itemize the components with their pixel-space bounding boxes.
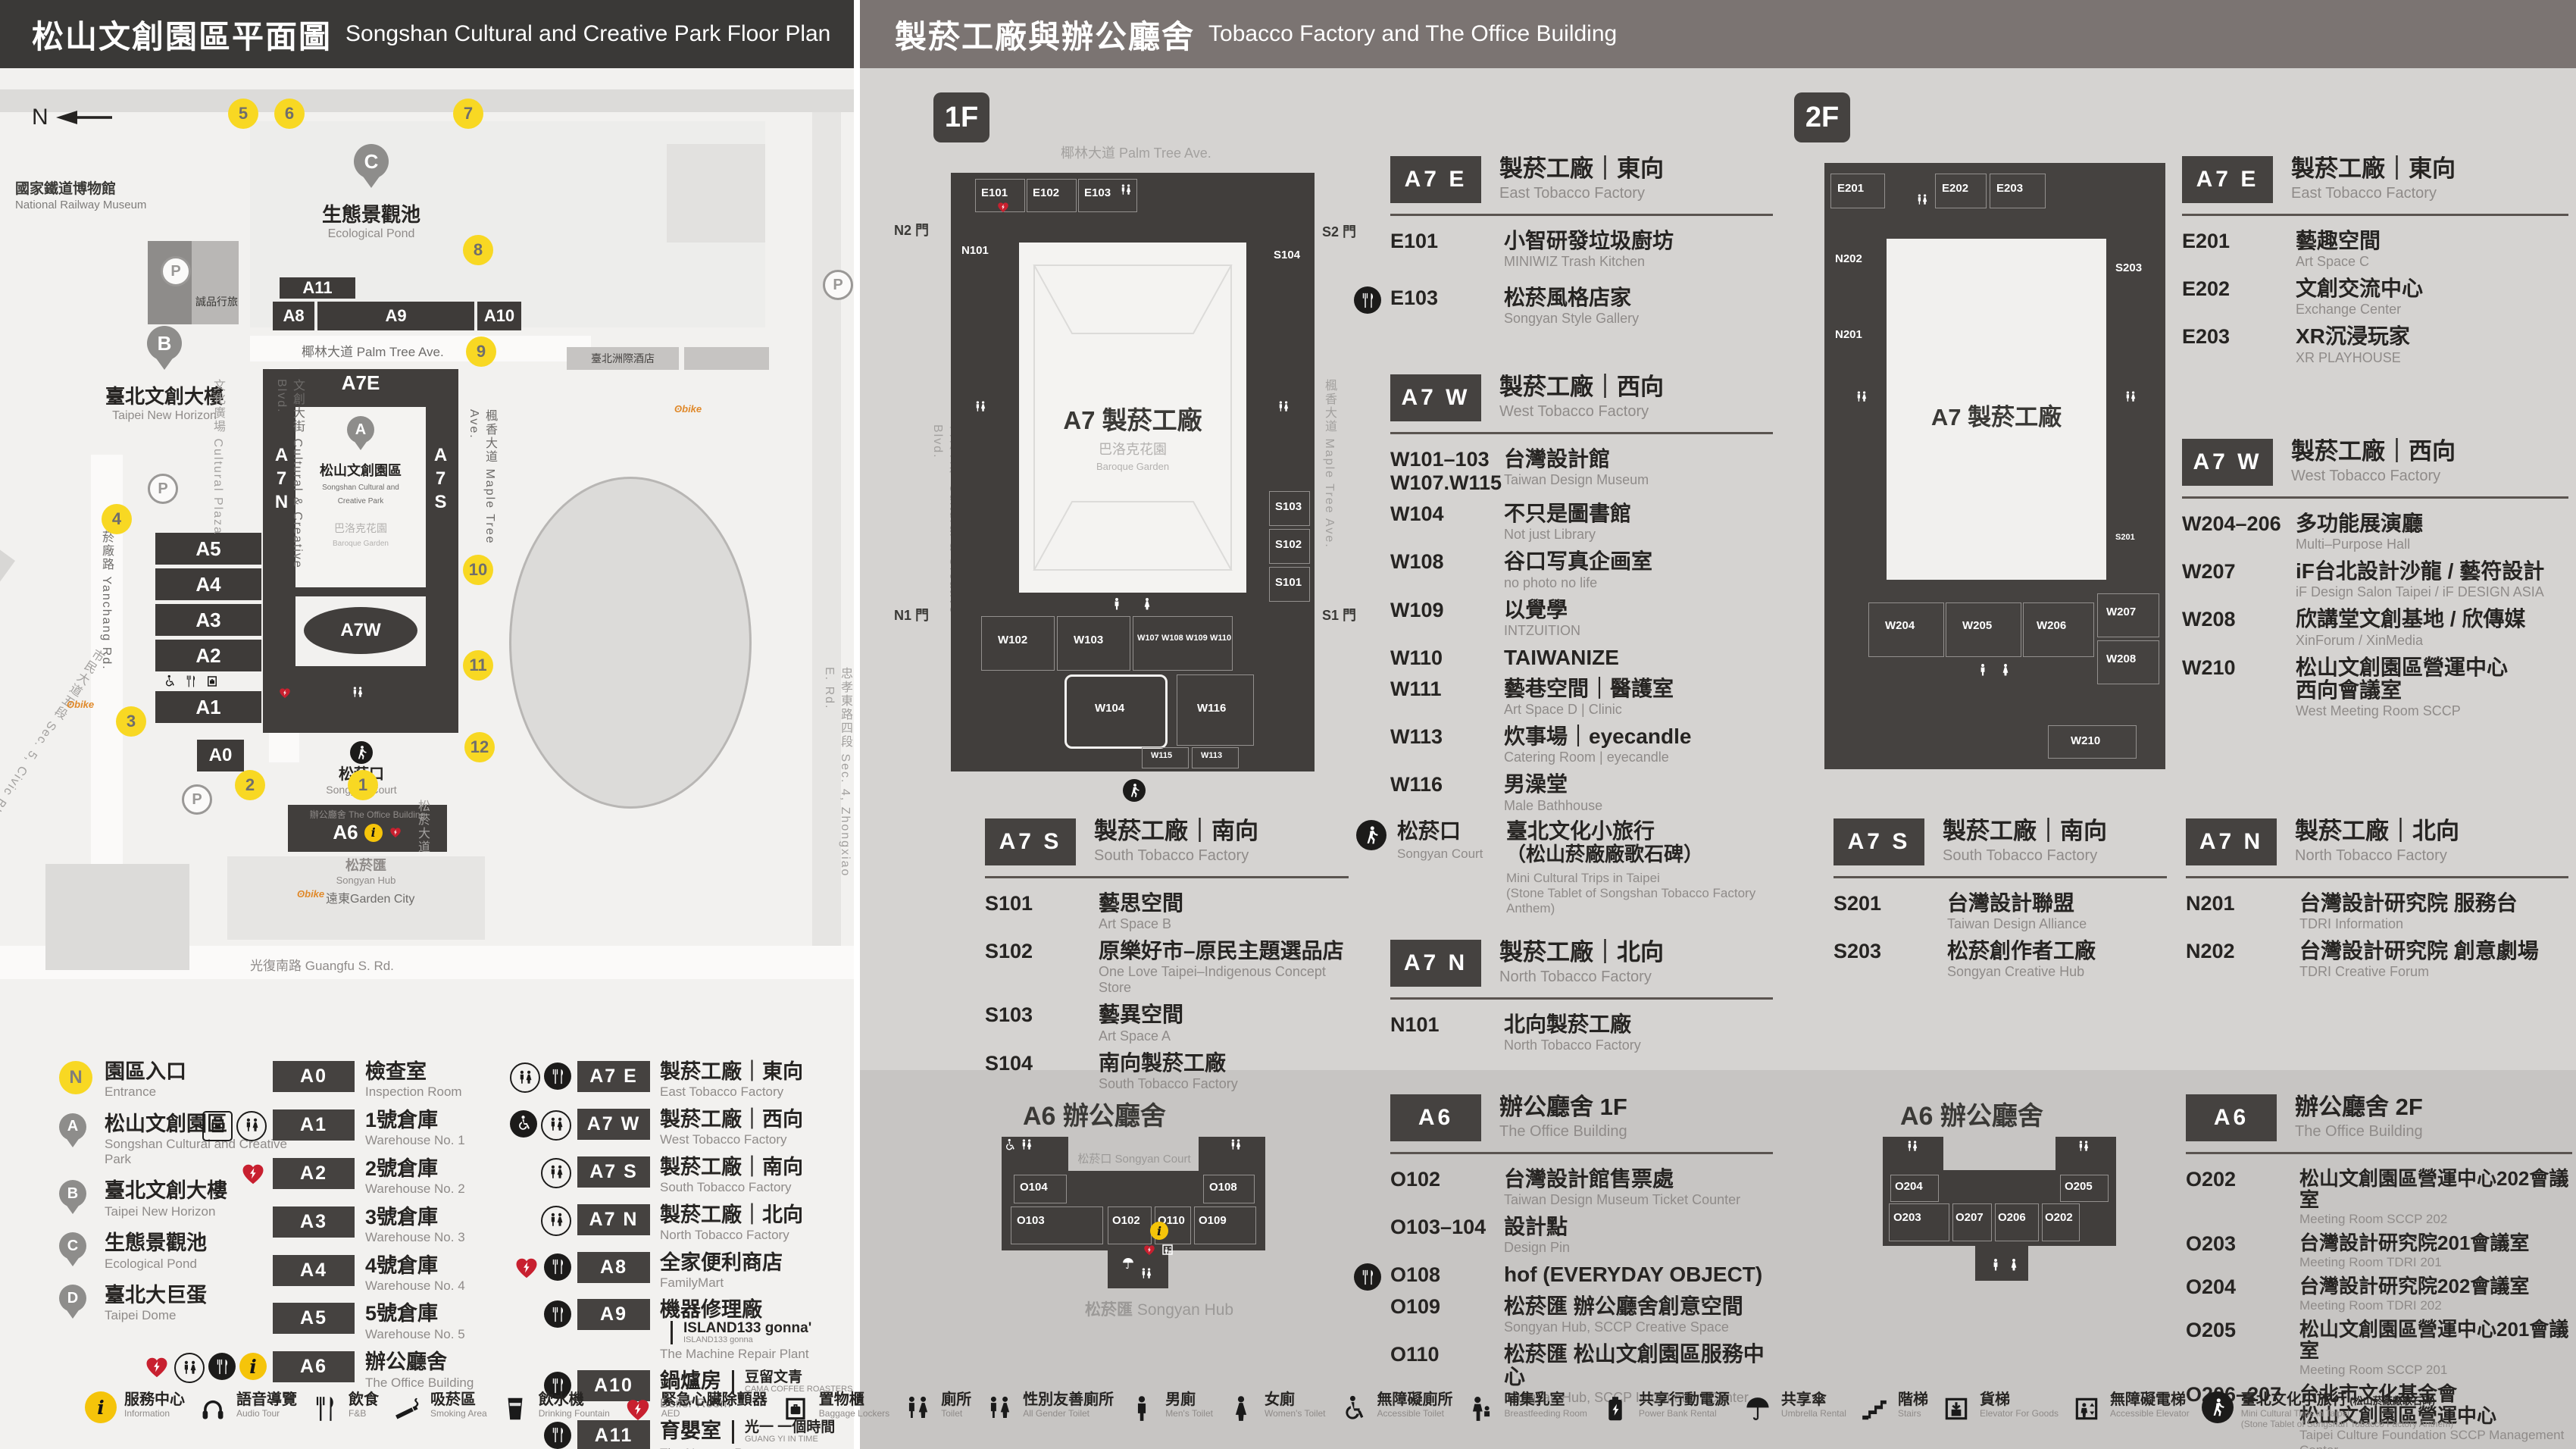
plan2-room-e201: E201 (1837, 182, 1864, 195)
facility-icon (1124, 1391, 1159, 1426)
room-list-item: S102 原樂好市–原民主題選品店One Love Taipei–Indigen… (985, 940, 1349, 996)
street-songyan-blvd: 松菸大道 (413, 800, 431, 883)
plan-a6-room-o103: O103 (1017, 1214, 1045, 1227)
plan1-room-e101: E101 (981, 186, 1008, 199)
factory-icons (541, 1158, 571, 1188)
facility-icon (900, 1391, 935, 1426)
building-badge: A5 (273, 1303, 355, 1334)
aed-icon (513, 1253, 540, 1281)
street-palm-label: 椰林大道 Palm Tree Ave. (302, 341, 444, 360)
building-icons (202, 1111, 267, 1141)
facility-item: 置物櫃 Baggage Lockers (778, 1391, 889, 1426)
entrance-9: 9 (466, 336, 496, 367)
map-building-a4: A4 (155, 568, 261, 600)
section-badge: A7 W (1390, 374, 1481, 421)
section-badge: A7 N (2186, 818, 2277, 865)
fnb-icon (308, 1391, 342, 1426)
room-list-item: W111 藝巷空間｜醫護室Art Space D | Clinic (1390, 678, 1773, 718)
facility-icon (1336, 1391, 1371, 1426)
section-badge: A7 N (1390, 940, 1481, 987)
facility-item: 飲食 F&B (308, 1391, 379, 1426)
room-list-item: W109 以覺學INTZUITION (1390, 599, 1773, 639)
goods-icon (1939, 1391, 1974, 1426)
office1-court-label: 松菸口 Songyan Court (1074, 1150, 1195, 1166)
plan1-room-w104: W104 (1095, 702, 1124, 715)
entrance-11: 11 (463, 650, 493, 681)
room-list-item: E101 小智研發垃圾廚坊MINIWIZ Trash Kitchen (1390, 230, 1773, 270)
plan1-garden-en: Baroque Garden (1096, 461, 1169, 474)
plan1-room-s102: S102 (1275, 538, 1302, 551)
section-badge: A7 S (1834, 818, 1924, 865)
plan-a6-room-o207: O207 (1955, 1211, 1984, 1224)
hotel-block-2 (684, 347, 769, 370)
fnb-icon (544, 1300, 571, 1328)
room-list-item: W207 iF台北設計沙龍 / 藝符設計 iF Design Salon Tai… (2182, 560, 2568, 600)
building-badge: A4 (273, 1255, 355, 1286)
parking-icon: P (161, 256, 191, 286)
facility-icon (498, 1391, 533, 1426)
section-badge: A7 S (985, 818, 1076, 865)
fnb-icon (1354, 1263, 1381, 1291)
plan1-room-n101: N101 (961, 244, 989, 257)
plan-a6-room-o109: O109 (1199, 1214, 1227, 1227)
room-list-item: O109 松菸匯 辦公廳舍創意空間Songyan Hub, SCCP Creat… (1390, 1295, 1773, 1335)
man-icon (1124, 1391, 1159, 1426)
pin-B-label: 臺北文創大樓Taipei New Horizon (105, 385, 224, 423)
gate-n1: N1 門 (894, 605, 929, 624)
building-icons: i (143, 1353, 267, 1383)
plan-a6-room-o102: O102 (1112, 1214, 1140, 1227)
plan1-room-s101: S101 (1275, 576, 1302, 589)
toilet-icon (541, 1110, 571, 1141)
entrance-4: 4 (102, 504, 132, 534)
map-building-a10: A10 (477, 302, 521, 330)
plan1-room-w107: W107 (1137, 634, 1159, 643)
facility-icon (1740, 1391, 1775, 1426)
plan2-room-e202: E202 (1942, 182, 1968, 195)
hotel-label: 臺北洲際酒店 (567, 347, 679, 370)
plan1-room-w108: W108 (1161, 634, 1183, 643)
compass-arrow-icon (55, 109, 115, 126)
room-list-item: S101 藝思空間Art Space B (985, 892, 1349, 932)
plan1-center-label: A7 製菸工廠 (1063, 400, 1202, 437)
info-icon: i (85, 1391, 117, 1423)
factory-badge: A7 S (577, 1156, 650, 1188)
street-cultural-blvd: 文創大街 Cultural & Creative Blvd. (274, 379, 306, 576)
plan2-room-n202: N202 (1835, 252, 1862, 265)
map-building-a11: A11 (280, 277, 355, 299)
warehouse-icons (163, 674, 219, 692)
facility-item: 緊急心臟除顫器 AED (621, 1391, 767, 1426)
wheel-icon (1336, 1391, 1371, 1426)
building-badge: A1 (273, 1109, 355, 1141)
facility-item: 貨梯 Elevator For Goods (1939, 1391, 2059, 1426)
section-2f-a7s: A7 S 製菸工廠｜南向South Tobacco Factory S201 台… (1834, 818, 2167, 987)
room-list-item: W108 谷口写真企画室no photo no life (1390, 550, 1773, 590)
plan1-room-s104: S104 (1274, 249, 1300, 261)
legend-building-item: A4 4號倉庫 Warehouse No. 4 (193, 1255, 511, 1294)
facility-item: 女廁 Women's Toilet (1224, 1391, 1326, 1426)
facility-item: 無障礙廁所 Accessible Toilet (1336, 1391, 1453, 1426)
pin-A: A (347, 416, 374, 443)
room-list-item: E202 文創交流中心Exchange Center (2182, 277, 2568, 318)
baroque-garden-label: 巴洛克花園 Baroque Garden (295, 521, 426, 549)
entrance-1: 1 (348, 770, 378, 800)
section-badge: A6 (2186, 1094, 2277, 1141)
room-list-item: O202 松山文創園區營運中心202會議室 Meeting Room SCCP … (2186, 1168, 2572, 1227)
map-hub-label: 松菸匯 Songyan Hub (336, 858, 396, 886)
section-1f-a7s: A7 S 製菸工廠｜南向South Tobacco Factory S101 藝… (985, 818, 1349, 1100)
section-1f-a7w: A7 W 製菸工廠｜西向West Tobacco Factory W101–10… (1390, 374, 1773, 822)
office2-plan-title: A6 辦公廳舍 (1900, 1095, 2043, 1132)
youbike-icon: ʘbike (297, 888, 324, 900)
gate-s2: S2 門 (1322, 221, 1356, 241)
walker-icon (1356, 820, 1386, 850)
plan2-room-w210: W210 (2071, 734, 2100, 747)
facility-icon (308, 1391, 342, 1426)
plan-a6-1f: 松菸口 Songyan Court O104 O108 O103 O102 O1… (1002, 1137, 1265, 1288)
facility-icon (2200, 1391, 2235, 1423)
legend-factory-item: A7 S 製菸工廠｜南向 South Tobacco Factory (523, 1156, 854, 1195)
plan1-room-w103: W103 (1074, 634, 1103, 646)
left-header: 松山文創園區平面圖 Songshan Cultural and Creative… (0, 0, 854, 68)
facility-item: 哺集乳室 Breastfeeding Room (1464, 1391, 1587, 1426)
facility-legend: i 服務中心 Information 語音導覽 Audio Tour 飲食 F&… (83, 1391, 1917, 1429)
legend-building-item: A0 檢查室 Inspection Room (193, 1061, 511, 1100)
plan2-room-s201: S201 (2115, 533, 2135, 542)
entrance-12: 12 (464, 732, 495, 762)
woman-icon (1224, 1391, 1258, 1426)
gate-s1: S1 門 (1322, 605, 1356, 624)
railway-museum-label: 國家鐵道博物館National Railway Museum (15, 180, 146, 213)
smoke-icon (389, 1391, 424, 1426)
plan-a6-room-o206: O206 (1998, 1211, 2026, 1224)
toilet-icon (236, 1111, 267, 1141)
legend-building-item: A3 3號倉庫 Warehouse No. 3 (193, 1206, 511, 1245)
locker-icon (202, 1111, 233, 1141)
section-badge: A6 (1390, 1094, 1481, 1141)
legend-factory-item: A7 N 製菸工廠｜北向 North Tobacco Factory (523, 1204, 854, 1243)
fnb-icon (544, 1062, 571, 1090)
right-header: 製菸工廠與辦公廳舍 Tobacco Factory and The Office… (860, 0, 2576, 68)
toilet-icon (541, 1206, 571, 1236)
audio-icon (195, 1391, 230, 1426)
room-list-item: W110 TAIWANIZE (1390, 646, 1773, 670)
block-ne (667, 144, 765, 243)
plan-a6-room-o202: O202 (2045, 1211, 2073, 1224)
building-badge: A3 (273, 1206, 355, 1238)
legend-building-item: i A6 辦公廳舍 The Office Building (193, 1351, 511, 1390)
facility-item: 無障礙電梯 Accessible Elevator (2069, 1391, 2190, 1426)
building-badge: A0 (273, 1061, 355, 1092)
room-list-item: O102 台灣設計館售票處Taiwan Design Museum Ticket… (1390, 1168, 1773, 1208)
facility-item: 共享行動電源 Power Bank Rental (1598, 1391, 1730, 1426)
locker-icon (778, 1391, 813, 1426)
plan1-room-w102: W102 (998, 634, 1027, 646)
factory-badge: A7 E (577, 1061, 650, 1092)
room-list-item: O205 松山文創園區營運中心201會議室 Meeting Room SCCP … (2186, 1319, 2572, 1378)
street-cultural-plaza: 文化廣場 Cultural Plaza (208, 379, 227, 561)
building-icons (239, 1160, 267, 1187)
facility-item: 飲水機 Drinking Fountain (498, 1391, 610, 1426)
power-icon (1598, 1391, 1633, 1426)
legend-building-item: A5 5號倉庫 Warehouse No. 5 (193, 1303, 511, 1341)
room-list-item: N201 台灣設計研究院 服務台TDRI Information (2186, 892, 2568, 932)
road-top (0, 89, 854, 112)
plan2-center-label: A7 製菸工廠 (1931, 398, 2062, 432)
pin-C: C (354, 144, 389, 179)
plan2-room-n201: N201 (1835, 328, 1862, 341)
umbrella-icon (1740, 1391, 1775, 1426)
room-list-item: E203 XR沉浸玩家XR PLAYHOUSE (2182, 325, 2568, 365)
info-icon: i (239, 1353, 267, 1380)
place-mark: N (59, 1061, 92, 1094)
section-a6-1f: A6 辦公廳舍 1FThe Office Building O102 台灣設計館… (1390, 1094, 1773, 1413)
room-list-item: S201 台灣設計聯盟Taiwan Design Alliance (1834, 892, 2167, 932)
section-1f-a7e: A7 E 製菸工廠｜東向East Tobacco Factory E101 小智… (1390, 156, 1773, 343)
map-building-a0: A0 (197, 740, 244, 771)
toilet-icon (541, 1158, 571, 1188)
facility-item: 共享傘 Umbrella Rental (1740, 1391, 1846, 1426)
plan1-room-w116: W116 (1197, 702, 1226, 715)
walker-icon (350, 741, 373, 764)
entrance-3: 3 (116, 706, 146, 737)
aed-icon (143, 1353, 170, 1380)
right-title-zh: 製菸工廠與辦公廳舍 (895, 11, 1195, 58)
garden-city-label: 遠東Garden City (326, 888, 414, 906)
facility-item: 語音導覽 Audio Tour (195, 1391, 297, 1426)
map-building-a2: A2 (155, 640, 261, 671)
facility-icon (778, 1391, 813, 1426)
place-mark: B (59, 1180, 92, 1213)
factory-icons (541, 1206, 571, 1236)
section-2f-a7n: A7 N 製菸工廠｜北向North Tobacco Factory N201 台… (2186, 818, 2568, 987)
factory-badge: A7 W (577, 1109, 650, 1140)
plan2-room-w205: W205 (1962, 619, 1992, 632)
facility-item: 階梯 Stairs (1857, 1391, 1928, 1426)
floor-2f-badge: 2F (1794, 92, 1850, 142)
legend-factory-item: A7 W 製菸工廠｜西向 West Tobacco Factory (523, 1109, 854, 1147)
toilet-icon (174, 1353, 205, 1383)
pin-C-label: 生態景觀池Ecological Pond (322, 203, 420, 241)
facility-icon (621, 1391, 655, 1426)
couple-icon (900, 1391, 935, 1426)
factory-icons (510, 1110, 571, 1141)
room-list-item: N101 北向製菸工廠North Tobacco Factory (1390, 1013, 1773, 1053)
cup-icon (498, 1391, 533, 1426)
plan2-room-w204: W204 (1885, 619, 1915, 632)
street-zhongxiao: 忠孝東路四段 Sec. 4, Zhongxiao E. Rd. (822, 667, 854, 879)
legend-factory-item: A8 全家便利商店 FamilyMart (523, 1252, 854, 1291)
fnb-icon (1354, 286, 1381, 314)
plan-a6-room-o108: O108 (1209, 1181, 1237, 1194)
walker-icon (1123, 779, 1146, 802)
room-list-item: O204 台灣設計研究院202會議室 Meeting Room TDRI 202 (2186, 1275, 2572, 1313)
room-list-item: W210 松山文創園區營運中心 西向會議室 West Meeting Room … (2182, 656, 2568, 719)
floor-plan-poster: 松山文創園區平面圖 Songshan Cultural and Creative… (0, 0, 2576, 1449)
plan2-room-w208: W208 (2106, 653, 2136, 665)
plan1-room-w115: W115 (1151, 751, 1172, 760)
section-2f-a7e: A7 E 製菸工廠｜東向East Tobacco Factory E201 藝趣… (2182, 156, 2568, 374)
right-title-en: Tobacco Factory and The Office Building (1208, 21, 1617, 47)
map-building-a1: A1 (155, 691, 261, 723)
section-badge: A7 E (1390, 156, 1481, 203)
entrance-10: 10 (463, 555, 493, 585)
aed-icon (239, 1160, 267, 1187)
place-mark: C (59, 1232, 92, 1266)
facility-icon (195, 1391, 230, 1426)
factory-icons (510, 1062, 571, 1093)
parking-icon: P (823, 270, 853, 300)
legend-buildings: A0 檢查室 Inspection Room A1 1號倉庫 Warehouse… (193, 1061, 511, 1400)
facility-item: 廁所 Toilet (900, 1391, 971, 1426)
map-a7-courtyard: A 松山文創園區 Songshan Cultural and Creative … (295, 407, 426, 587)
entrance-7: 7 (453, 99, 483, 129)
plan1-street-top: 椰林大道 Palm Tree Ave. (1061, 142, 1211, 162)
compass-label: N (32, 105, 48, 130)
left-title-en: Songshan Cultural and Creative Park Floo… (345, 21, 830, 47)
office1-hub-label: 松菸匯 Songyan Hub (1085, 1297, 1233, 1320)
room-list-item: W208 欣講堂文創基地 / 欣傳媒 XinForum / XinMedia (2182, 608, 2568, 648)
map-a7w-cutout: A7W (295, 596, 426, 666)
facility-item: 性別友善廁所 All Gender Toilet (982, 1391, 1114, 1426)
accessible-icon (510, 1110, 537, 1138)
factory-badge: A8 (577, 1252, 650, 1283)
facility-icon: i (83, 1391, 118, 1423)
plan1-room-w113: W113 (1201, 751, 1222, 760)
plan-a6-room-o205: O205 (2065, 1180, 2093, 1193)
legend-factory-item: A7 E 製菸工廠｜東向 East Tobacco Factory (523, 1061, 854, 1100)
gate-n2: N2 門 (894, 220, 929, 239)
block-sw (45, 864, 189, 970)
legend-building-item: A1 1號倉庫 Warehouse No. 1 (193, 1109, 511, 1148)
section-2f-a7w: A7 W 製菸工廠｜西向West Tobacco Factory W204–20… (2182, 439, 2568, 727)
room-list-item: E201 藝趣空間Art Space C (2182, 230, 2568, 270)
room-list-item: N202 台灣設計研究院 創意劇場TDRI Creative Forum (2186, 940, 2568, 980)
taipei-dome-shape (509, 477, 752, 809)
plan1-room-e102: E102 (1033, 186, 1059, 199)
youbike-icon: ʘbike (67, 699, 94, 710)
street-maple: 楓香大道 Maple Tree Ave. (467, 409, 499, 576)
plan1-room-w109: W109 (1186, 634, 1208, 643)
parking-icon: P (182, 784, 212, 815)
facility-icon (389, 1391, 424, 1426)
facility-item: 男廁 Men's Toilet (1124, 1391, 1213, 1426)
section-1f-a7n: A7 N 製菸工廠｜北向North Tobacco Factory N101 北… (1390, 940, 1773, 1061)
street-guangfu: 光復南路 Guangfu S. Rd. (250, 955, 394, 974)
facility-icon (982, 1391, 1017, 1426)
parking-icon: P (148, 474, 178, 504)
map-building-a8: A8 (273, 302, 314, 330)
room-list-item: O103–104 設計點Design Pin (1390, 1216, 1773, 1256)
facility-item: i 服務中心 Information (83, 1391, 185, 1423)
facility-item: 臺北文化小旅行 (松山菸廠廠歌石碑) Mini Cultural Trips i… (2200, 1391, 2453, 1429)
facility-icon (1939, 1391, 1974, 1426)
stairs-icon (1857, 1391, 1892, 1426)
pin-B: B (147, 326, 182, 361)
entrance-5: 5 (228, 99, 258, 129)
plan1-garden-zh: 巴洛克花園 (1099, 441, 1167, 458)
plan-a6-2f: O204 O205 O203 O207 O206 O202 (1883, 1137, 2116, 1288)
room-list-item: O203 台灣設計研究院201會議室 Meeting Room TDRI 201 (2186, 1232, 2572, 1270)
room-list-item: W204–206 多功能展演廳 Multi–Purpose Hall (2182, 512, 2568, 552)
floor-1f-badge: 1F (933, 92, 989, 142)
youbike-icon: ʘbike (674, 403, 702, 415)
panel-divider (854, 0, 860, 1449)
baby-icon (1464, 1391, 1499, 1426)
plan2-room-w207: W207 (2106, 606, 2136, 618)
facility-icon (2069, 1391, 2104, 1426)
room-list-item: S104 南向製菸工廠South Tobacco Factory (985, 1052, 1349, 1092)
building-badge: A6 (273, 1351, 355, 1382)
facility-icon (1598, 1391, 1633, 1426)
section-badge: A7 W (2182, 439, 2273, 486)
facility-icon (1224, 1391, 1258, 1426)
plan-2f: A7 製菸工廠 E201 E202 E203 N202 N201 S203 S2… (1824, 163, 2165, 769)
plan-1f: A7 製菸工廠 巴洛克花園 Baroque Garden E101 E102 E… (951, 173, 1315, 771)
plan-a6-room-o203: O203 (1893, 1211, 1921, 1224)
plan2-room-s203: S203 (2115, 261, 2142, 274)
map-building-a3: A3 (155, 604, 261, 636)
factory-badge: A9 (577, 1299, 650, 1330)
entrance-2: 2 (235, 770, 265, 800)
plan2-room-e203: E203 (1996, 182, 2023, 195)
songyan-court-note: 松菸口 Songyan Court 臺北文化小旅行 （松山菸廠廠歌石碑） Min… (1356, 820, 1780, 916)
map-a7s-label: A7S (430, 445, 451, 515)
toilet-icon (510, 1062, 540, 1093)
facility-item: 吸菸區 Smoking Area (389, 1391, 487, 1426)
legend-building-item: A2 2號倉庫 Warehouse No. 2 (193, 1158, 511, 1197)
plan-a6-room-o204: O204 (1895, 1180, 1923, 1193)
room-list-item: S103 藝異空間Art Space A (985, 1003, 1349, 1044)
factory-icons (544, 1300, 571, 1328)
factory-icons (513, 1253, 571, 1281)
compass: N (32, 105, 115, 130)
map-building-a9: A9 (317, 302, 474, 330)
walker-icon (2202, 1391, 2234, 1423)
room-list-item: W113 炊事場｜eyecandleCatering Room | eyecan… (1390, 725, 1773, 765)
room-list-item: O108 hof (EVERYDAY OBJECT) (1390, 1263, 1773, 1287)
section-badge: A7 E (2182, 156, 2273, 203)
room-list-item: E103 松菸風格店家Songyan Style Gallery (1390, 286, 1773, 327)
fnb-icon (544, 1253, 571, 1281)
map-a7w-label: A7W (304, 607, 417, 654)
fnb-icon (208, 1353, 236, 1380)
room-list-item: W104 不只是圖書館Not just Library (1390, 502, 1773, 543)
heart-icon (621, 1391, 655, 1426)
pin-A-label: 松山文創園區 Songshan Cultural and Creative Pa… (295, 460, 426, 507)
plan1-street-right: 楓香大道 Maple Tree Ave. (1320, 379, 1338, 561)
plan-a6-room-o104: O104 (1020, 1181, 1048, 1194)
building-badge: A2 (273, 1158, 355, 1189)
place-mark: A (59, 1113, 92, 1147)
factory-badge: A7 N (577, 1204, 650, 1235)
couple-icon (982, 1391, 1017, 1426)
plan1-room-w110: W110 (1210, 634, 1231, 643)
place-mark: D (59, 1285, 92, 1318)
plan1-room-e103: E103 (1084, 186, 1111, 199)
entrance-6: 6 (274, 99, 305, 129)
facility-icon (1464, 1391, 1499, 1426)
plan1-room-s103: S103 (1275, 500, 1302, 513)
room-list-item: S203 松菸創作者工廠Songyan Creative Hub (1834, 940, 2167, 980)
office1-plan-title: A6 辦公廳舍 (1023, 1095, 1166, 1132)
lift-icon (2069, 1391, 2104, 1426)
room-list-item: W101–103W107.W115 台灣設計館Taiwan Design Mus… (1390, 448, 1773, 495)
legend-factory-item: A9 機器修理廠ISLAND133 gonna'ISLAND133 gonna … (523, 1299, 854, 1361)
street-yanchang: 菸廠路 Yanchang Rd. (97, 530, 115, 728)
room-list-item: W116 男澡堂Male Bathhouse (1390, 773, 1773, 813)
